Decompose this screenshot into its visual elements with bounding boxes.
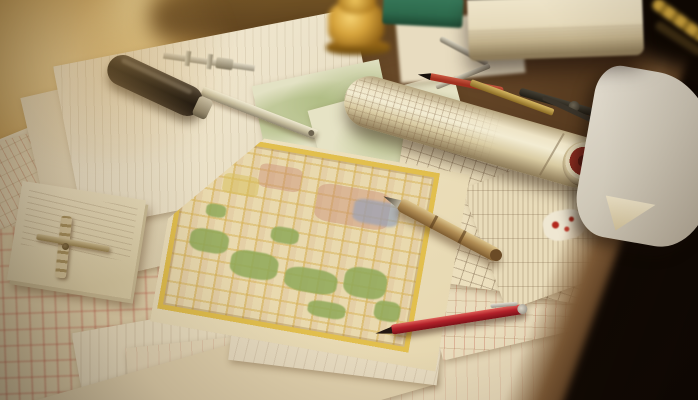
map-park-patch	[188, 226, 230, 256]
brass-clip-screw	[62, 243, 69, 250]
white-book	[467, 0, 644, 61]
scroll-wrap-seam	[539, 133, 565, 176]
pen-band	[429, 215, 438, 229]
map-district-pink	[257, 162, 304, 193]
map-park-patch	[306, 298, 347, 321]
map-park-patch	[270, 225, 300, 246]
book-page-edges	[468, 25, 644, 57]
green-notebook	[382, 0, 463, 28]
map-park-patch	[282, 265, 339, 298]
map-park-patch	[373, 299, 402, 323]
pen-clip	[490, 302, 517, 308]
caliper-slider	[216, 57, 234, 70]
map-park-patch	[341, 264, 389, 302]
map-park-patch	[205, 203, 227, 219]
map-park-patch	[228, 248, 280, 283]
pen-band	[458, 230, 467, 244]
ruler-end-hole	[307, 129, 315, 137]
notepad-ruled-lines	[20, 190, 137, 262]
desk-scene-photo	[0, 0, 698, 400]
map-district-yellow	[222, 173, 261, 199]
